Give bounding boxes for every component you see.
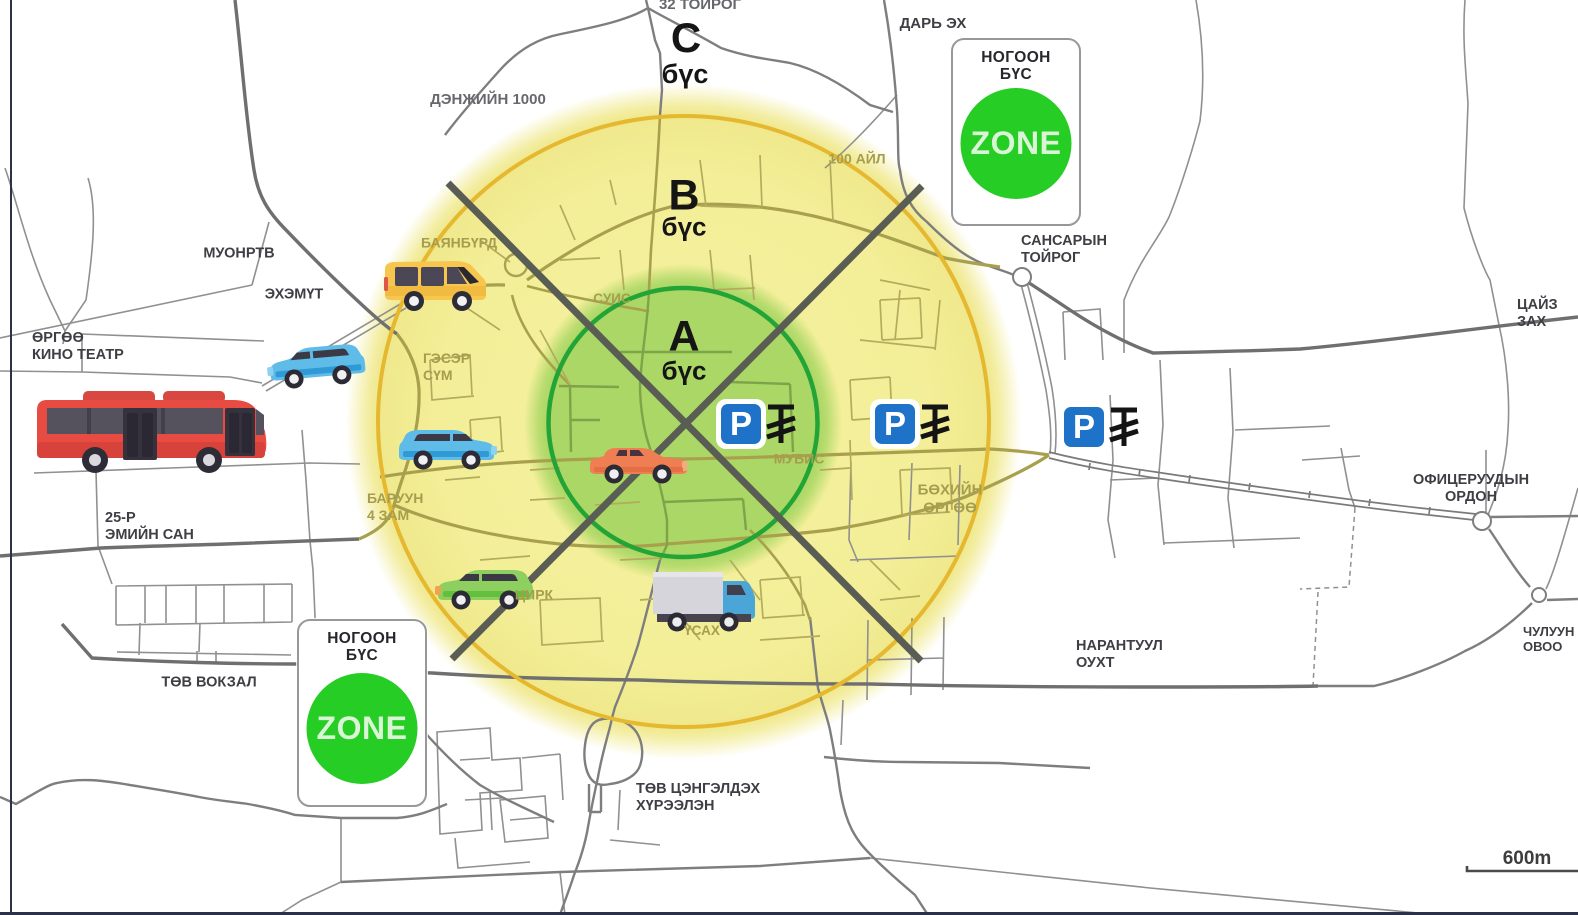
svg-text:P: P <box>884 405 906 442</box>
svg-text:P: P <box>730 405 752 442</box>
svg-text:P: P <box>1073 408 1095 445</box>
